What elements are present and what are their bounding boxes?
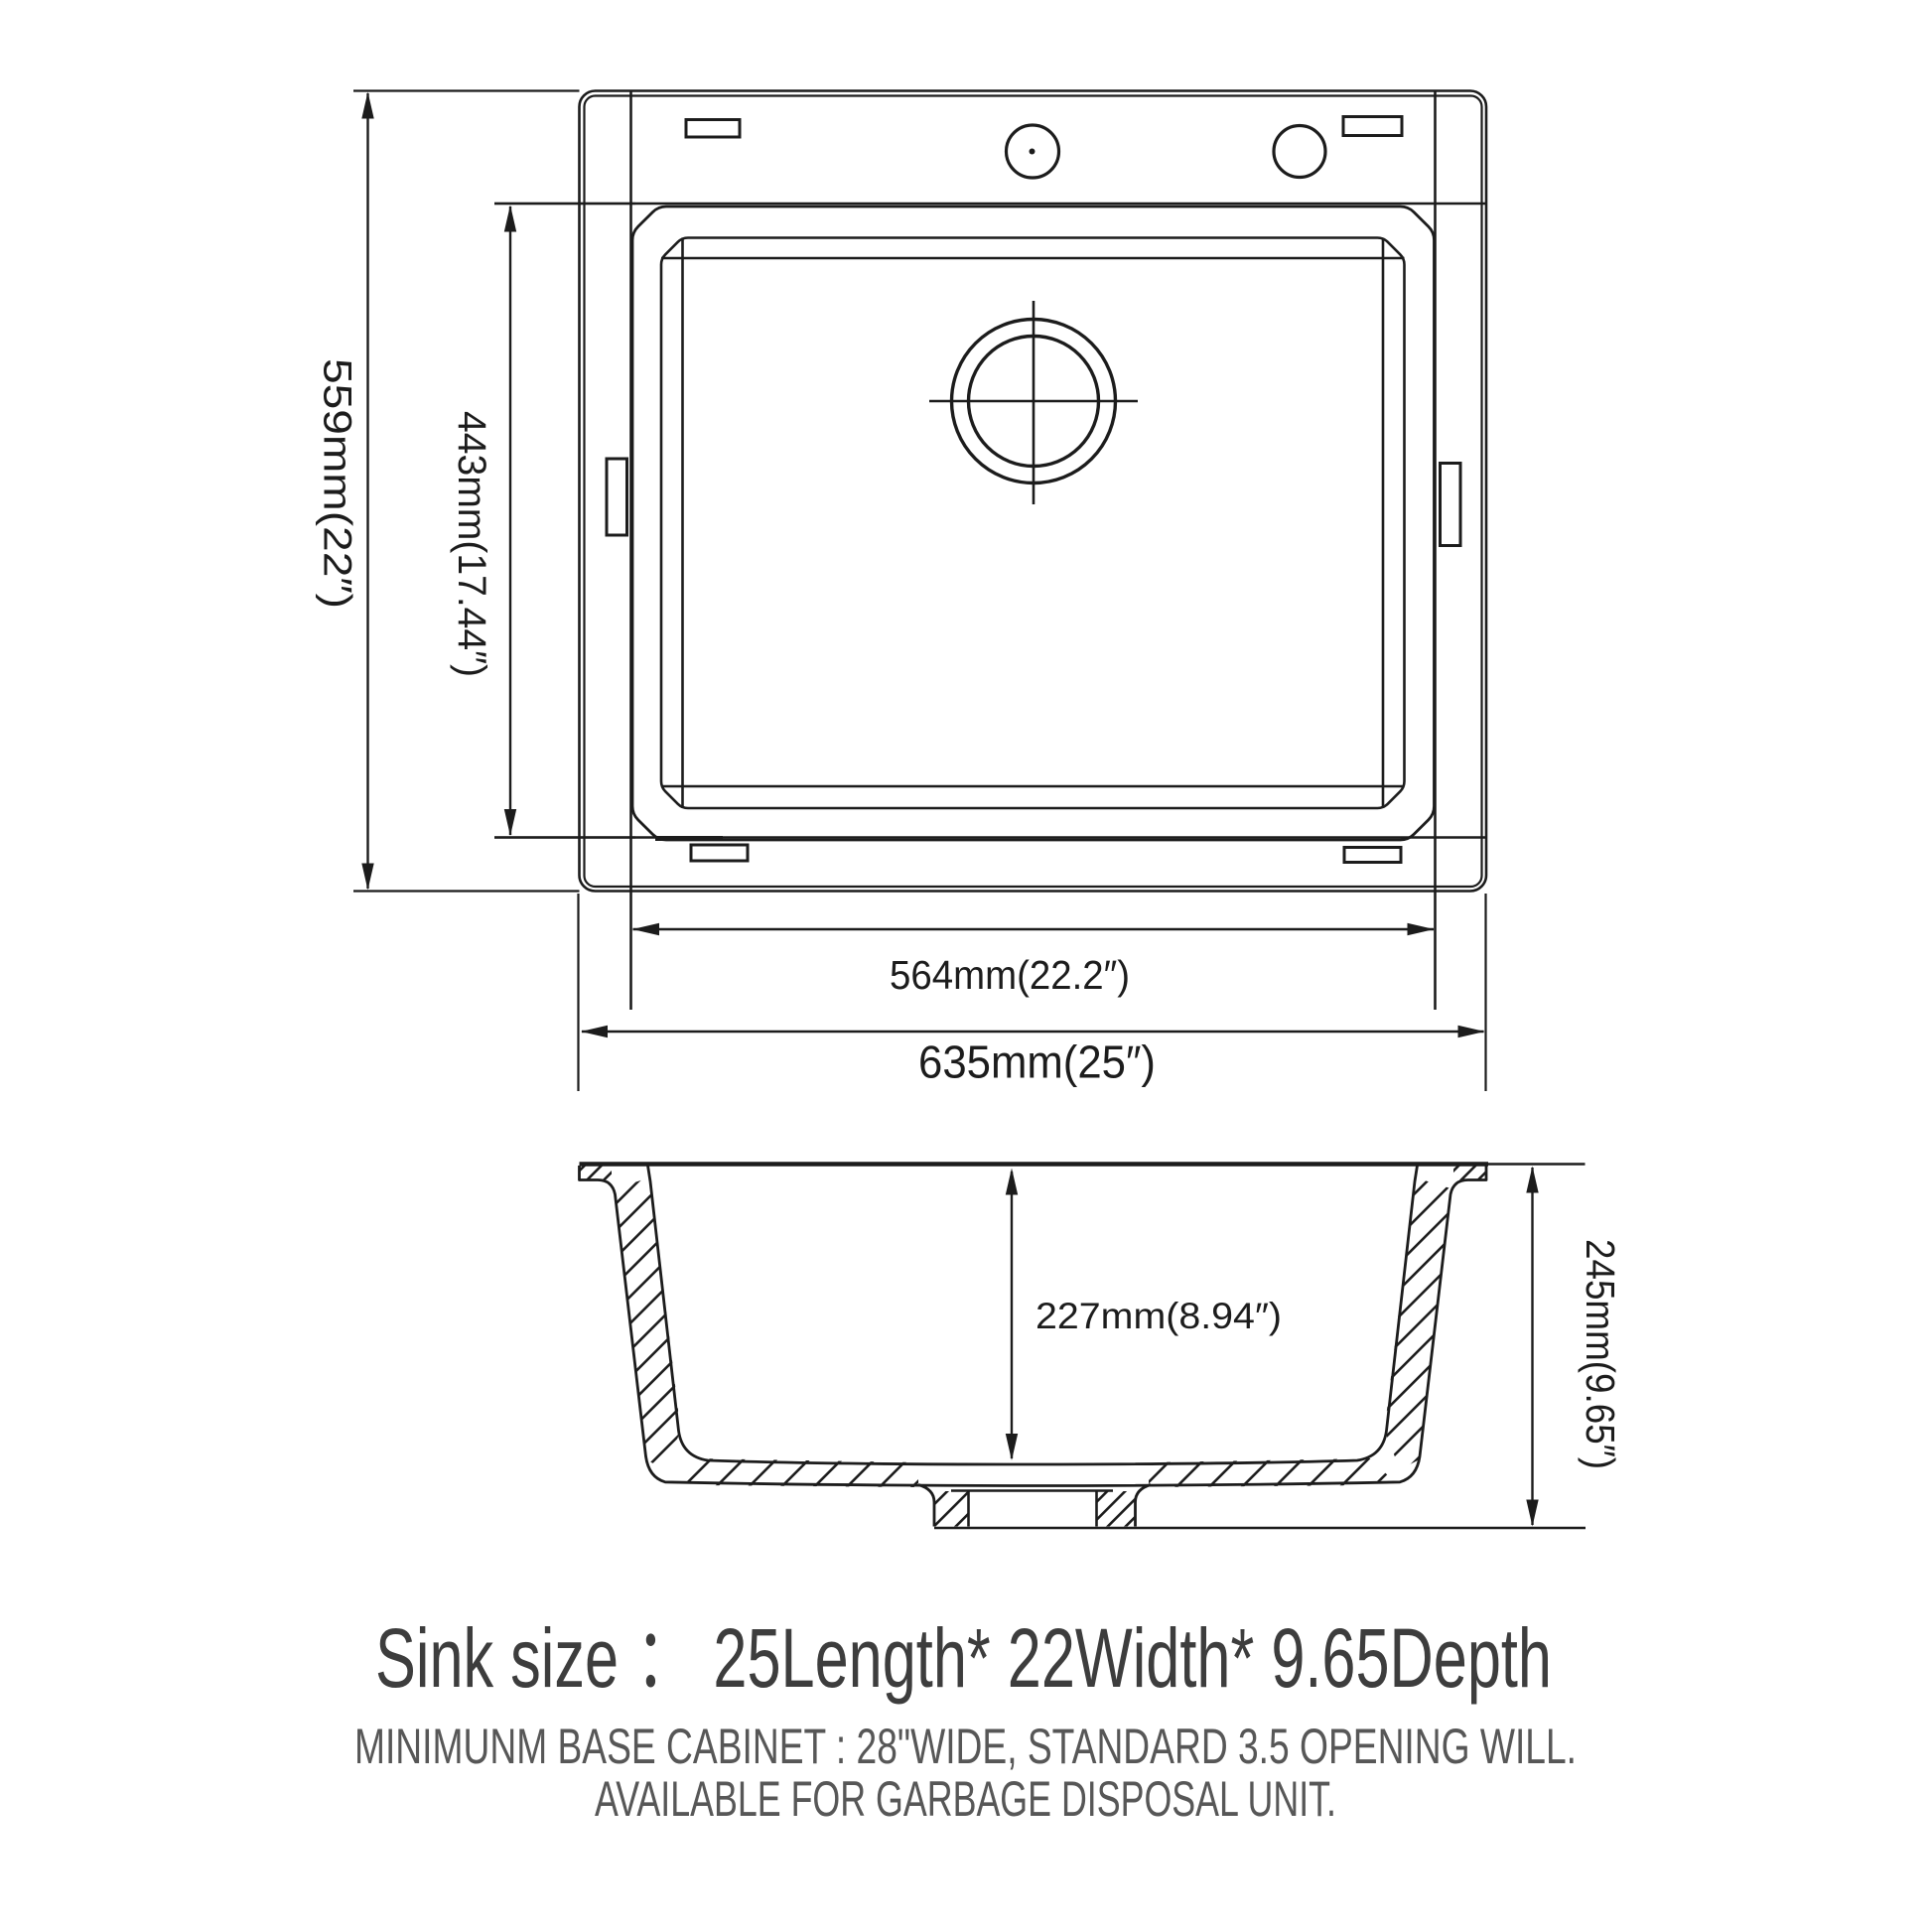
svg-text:559mm(22″): 559mm(22″) bbox=[316, 358, 359, 609]
svg-text:635mm(25″): 635mm(25″) bbox=[918, 1036, 1156, 1088]
svg-text:Sink size ： 25Length* 22Width: Sink size ： 25Length* 22Width* 9.65Depth bbox=[375, 1611, 1552, 1705]
svg-text:MINIMUNM BASE CABINET : 28"WID: MINIMUNM BASE CABINET : 28"WIDE, STANDAR… bbox=[354, 1719, 1577, 1774]
svg-text:564mm(22.2″): 564mm(22.2″) bbox=[890, 952, 1130, 998]
svg-text:227mm(8.94″): 227mm(8.94″) bbox=[1035, 1296, 1282, 1336]
svg-text:443mm(17.44″): 443mm(17.44″) bbox=[450, 411, 493, 677]
svg-text:AVAILABLE FOR GARBAGE DISPOSAL: AVAILABLE FOR GARBAGE DISPOSAL UNIT. bbox=[595, 1771, 1336, 1827]
svg-text:245mm(9.65″): 245mm(9.65″) bbox=[1578, 1239, 1623, 1469]
